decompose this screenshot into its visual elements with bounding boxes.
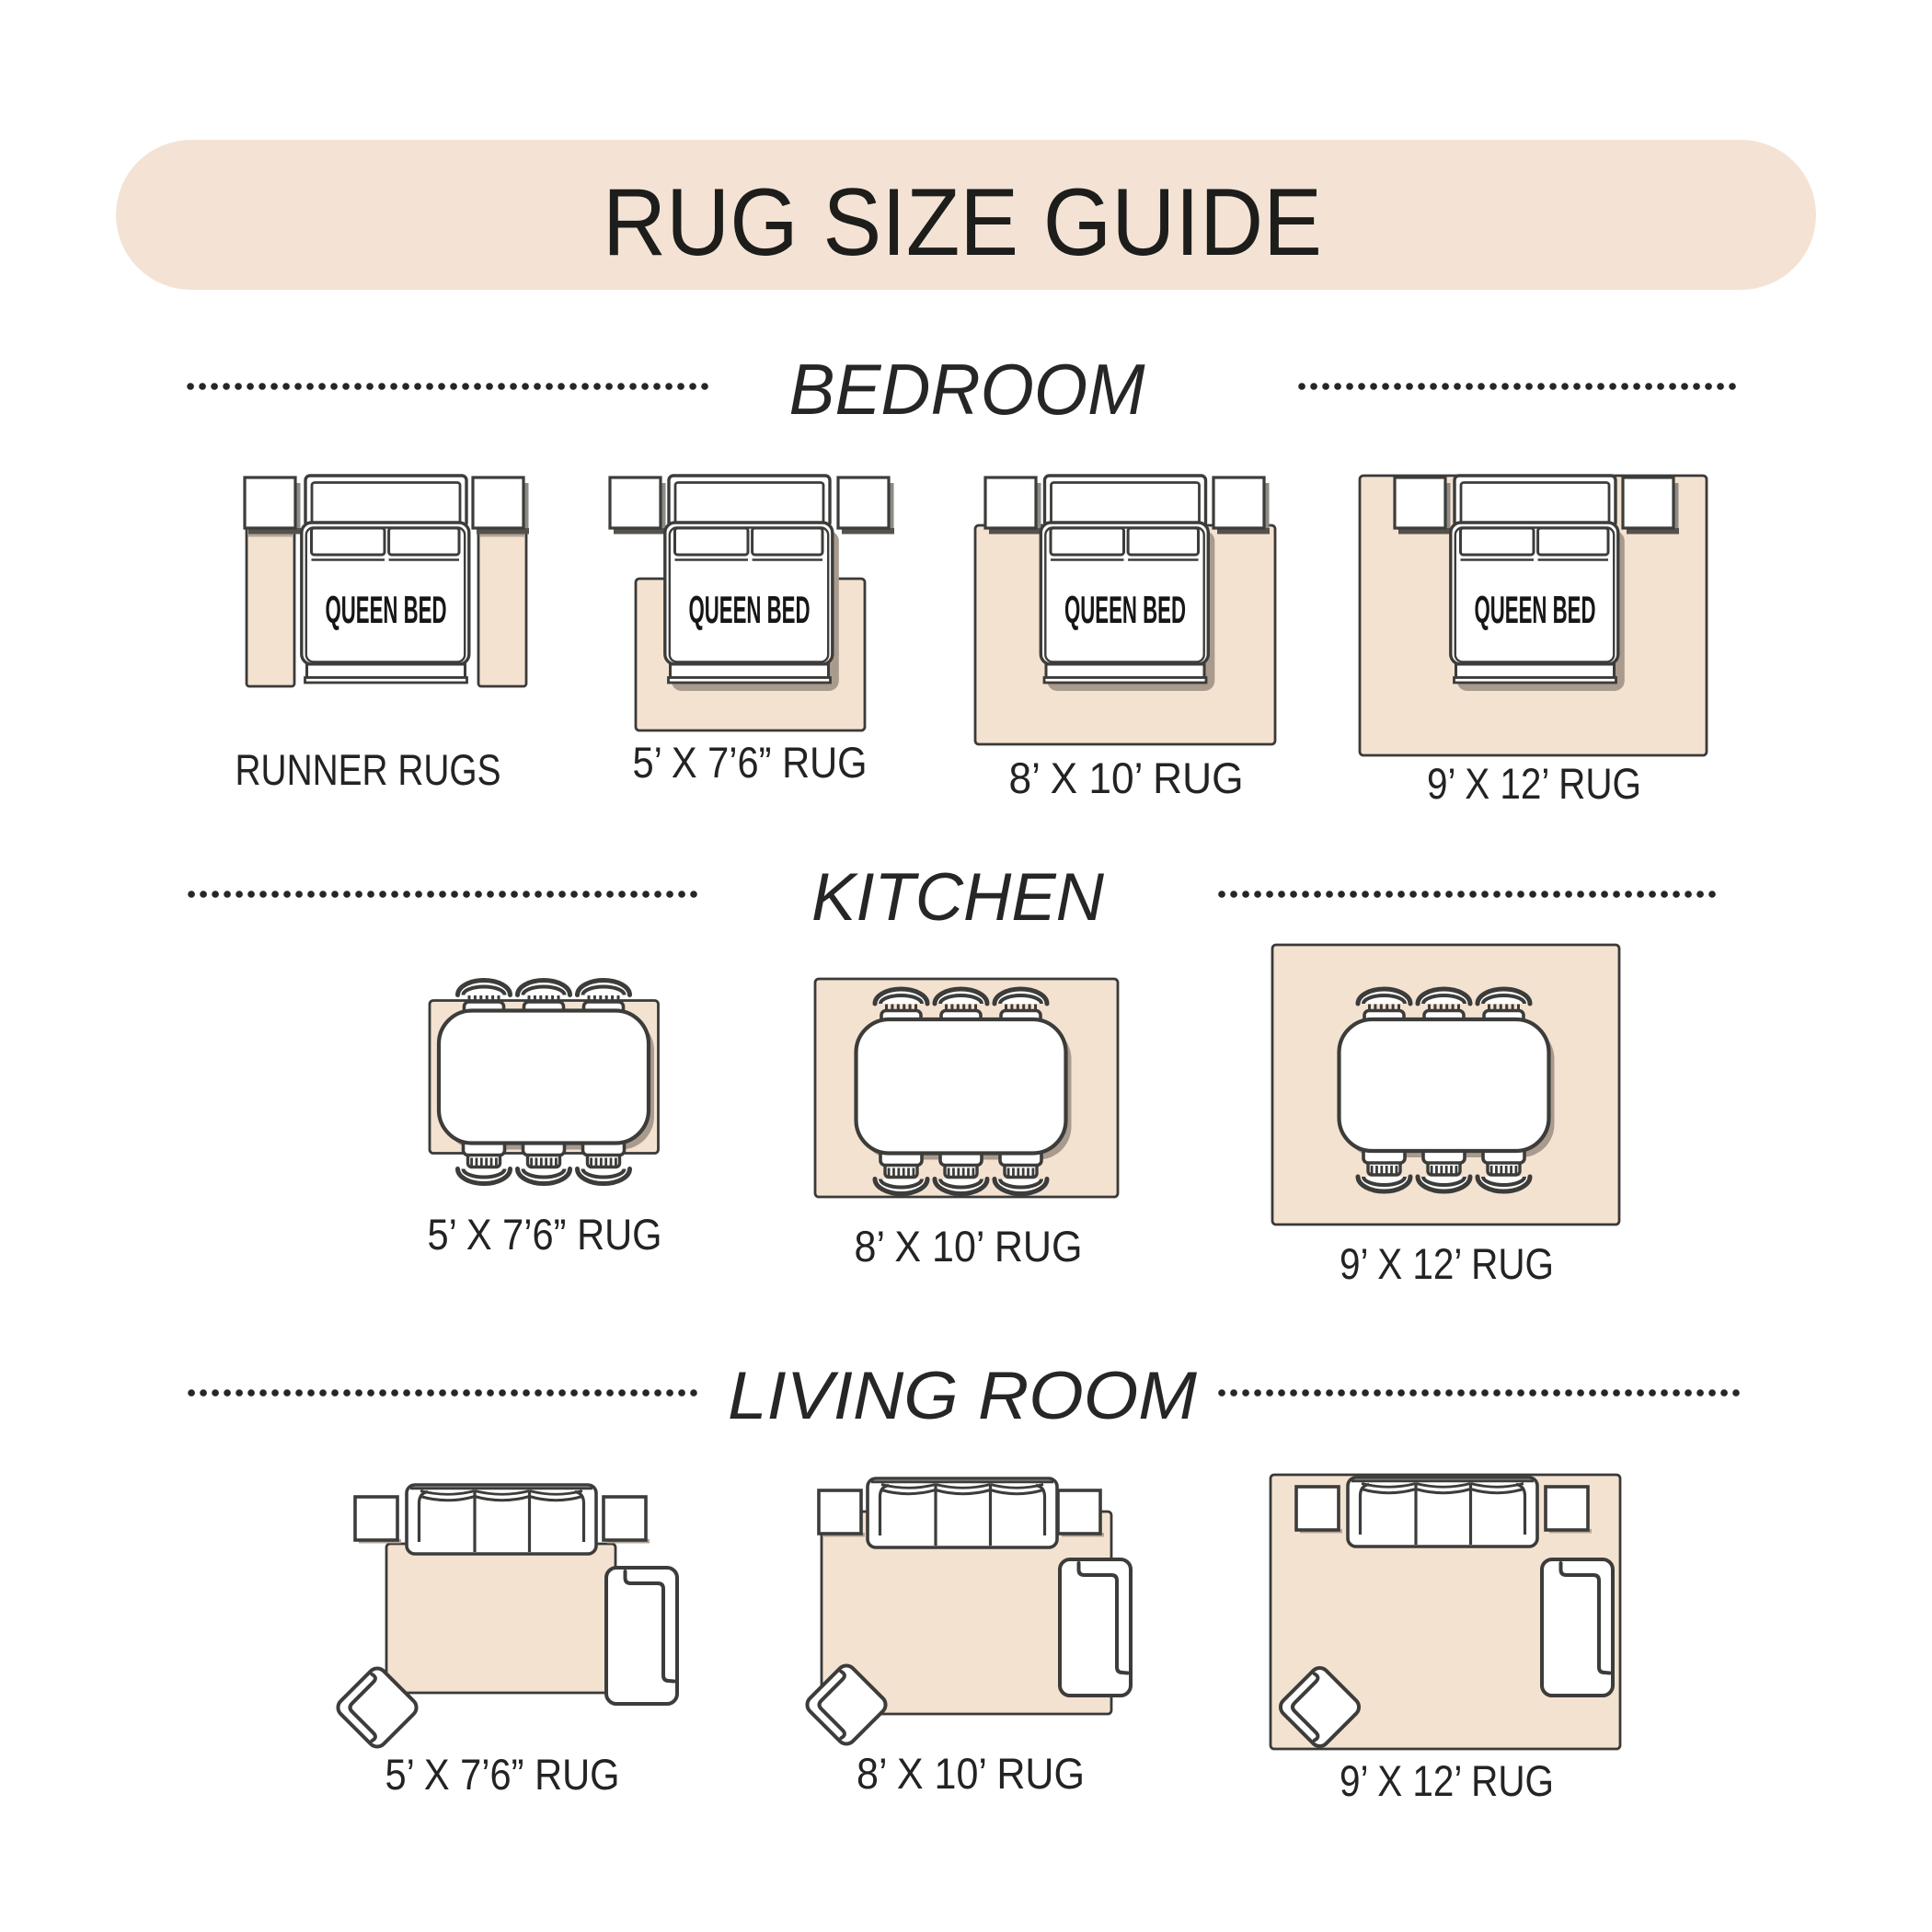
- svg-text:5’ X 7’6” RUG: 5’ X 7’6” RUG: [633, 738, 868, 787]
- svg-text:LIVING ROOM: LIVING ROOM: [728, 1359, 1197, 1433]
- svg-text:9’ X 12’ RUG: 9’ X 12’ RUG: [1427, 759, 1641, 808]
- svg-text:9’ X 12’ RUG: 9’ X 12’ RUG: [1340, 1239, 1554, 1288]
- svg-text:8’ X 10’ RUG: 8’ X 10’ RUG: [855, 1222, 1083, 1271]
- svg-text:8’ X 10’ RUG: 8’ X 10’ RUG: [857, 1749, 1085, 1798]
- svg-text:RUG SIZE GUIDE: RUG SIZE GUIDE: [603, 169, 1322, 276]
- svg-text:QUEEN BED: QUEEN BED: [1475, 588, 1596, 631]
- svg-text:5’ X 7’6” RUG: 5’ X 7’6” RUG: [385, 1750, 620, 1799]
- svg-text:QUEEN BED: QUEEN BED: [326, 588, 447, 631]
- svg-text:5’ X 7’6” RUG: 5’ X 7’6” RUG: [428, 1210, 662, 1259]
- svg-text:8’ X 10’ RUG: 8’ X 10’ RUG: [1009, 753, 1244, 802]
- svg-text:RUNNER RUGS: RUNNER RUGS: [236, 745, 501, 794]
- svg-text:BEDROOM: BEDROOM: [789, 349, 1145, 430]
- svg-text:9’ X 12’ RUG: 9’ X 12’ RUG: [1340, 1756, 1554, 1805]
- svg-text:KITCHEN: KITCHEN: [811, 860, 1104, 935]
- svg-text:QUEEN BED: QUEEN BED: [689, 588, 811, 631]
- svg-text:QUEEN BED: QUEEN BED: [1064, 588, 1186, 631]
